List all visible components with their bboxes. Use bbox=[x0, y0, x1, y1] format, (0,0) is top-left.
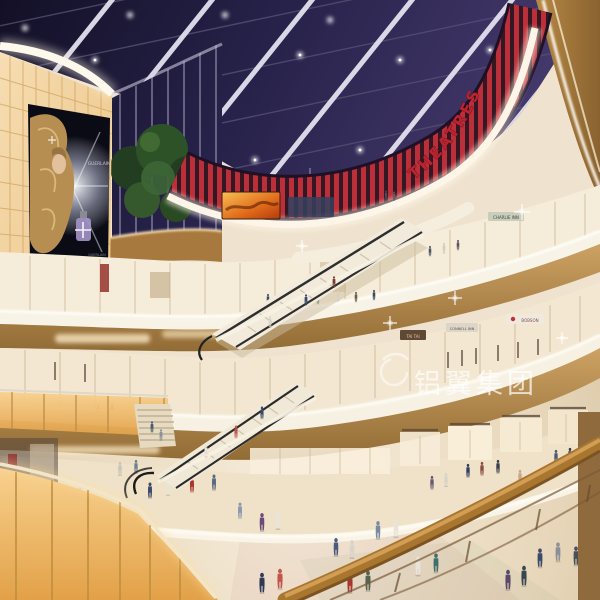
shop-sign-connell-inn: CONNELL INN bbox=[446, 323, 478, 332]
billboard-brand-text: GUERLAIN bbox=[88, 161, 111, 167]
red-banner bbox=[100, 264, 109, 292]
svg-text:CONNELL INN: CONNELL INN bbox=[450, 327, 475, 331]
svg-text:CHARLIE INN: CHARLIE INN bbox=[493, 215, 519, 220]
watermark-text: 铝翼集团 bbox=[414, 369, 538, 400]
billboard-model-face bbox=[52, 154, 66, 174]
movie-poster-blue bbox=[288, 197, 334, 217]
bobson-logo-icon bbox=[511, 317, 515, 321]
billboard-brand-text-small: GUERLAIN bbox=[88, 253, 106, 257]
scene-canvas: GUERLAIN GUERLAIN THEATRES CHARLIE INN bbox=[0, 0, 600, 600]
svg-text:TAI TAI: TAI TAI bbox=[405, 334, 419, 339]
shop-sign-charlie-inn: CHARLIE INN bbox=[488, 212, 524, 221]
shop-sign-bobson: BOBSON bbox=[506, 314, 544, 324]
corridor-ceiling-light bbox=[55, 334, 150, 343]
mall-atrium-rendering: GUERLAIN GUERLAIN THEATRES CHARLIE INN bbox=[0, 0, 600, 600]
shop-sign-tai-tai: TAI TAI bbox=[400, 330, 426, 340]
svg-text:BOBSON: BOBSON bbox=[521, 318, 538, 323]
